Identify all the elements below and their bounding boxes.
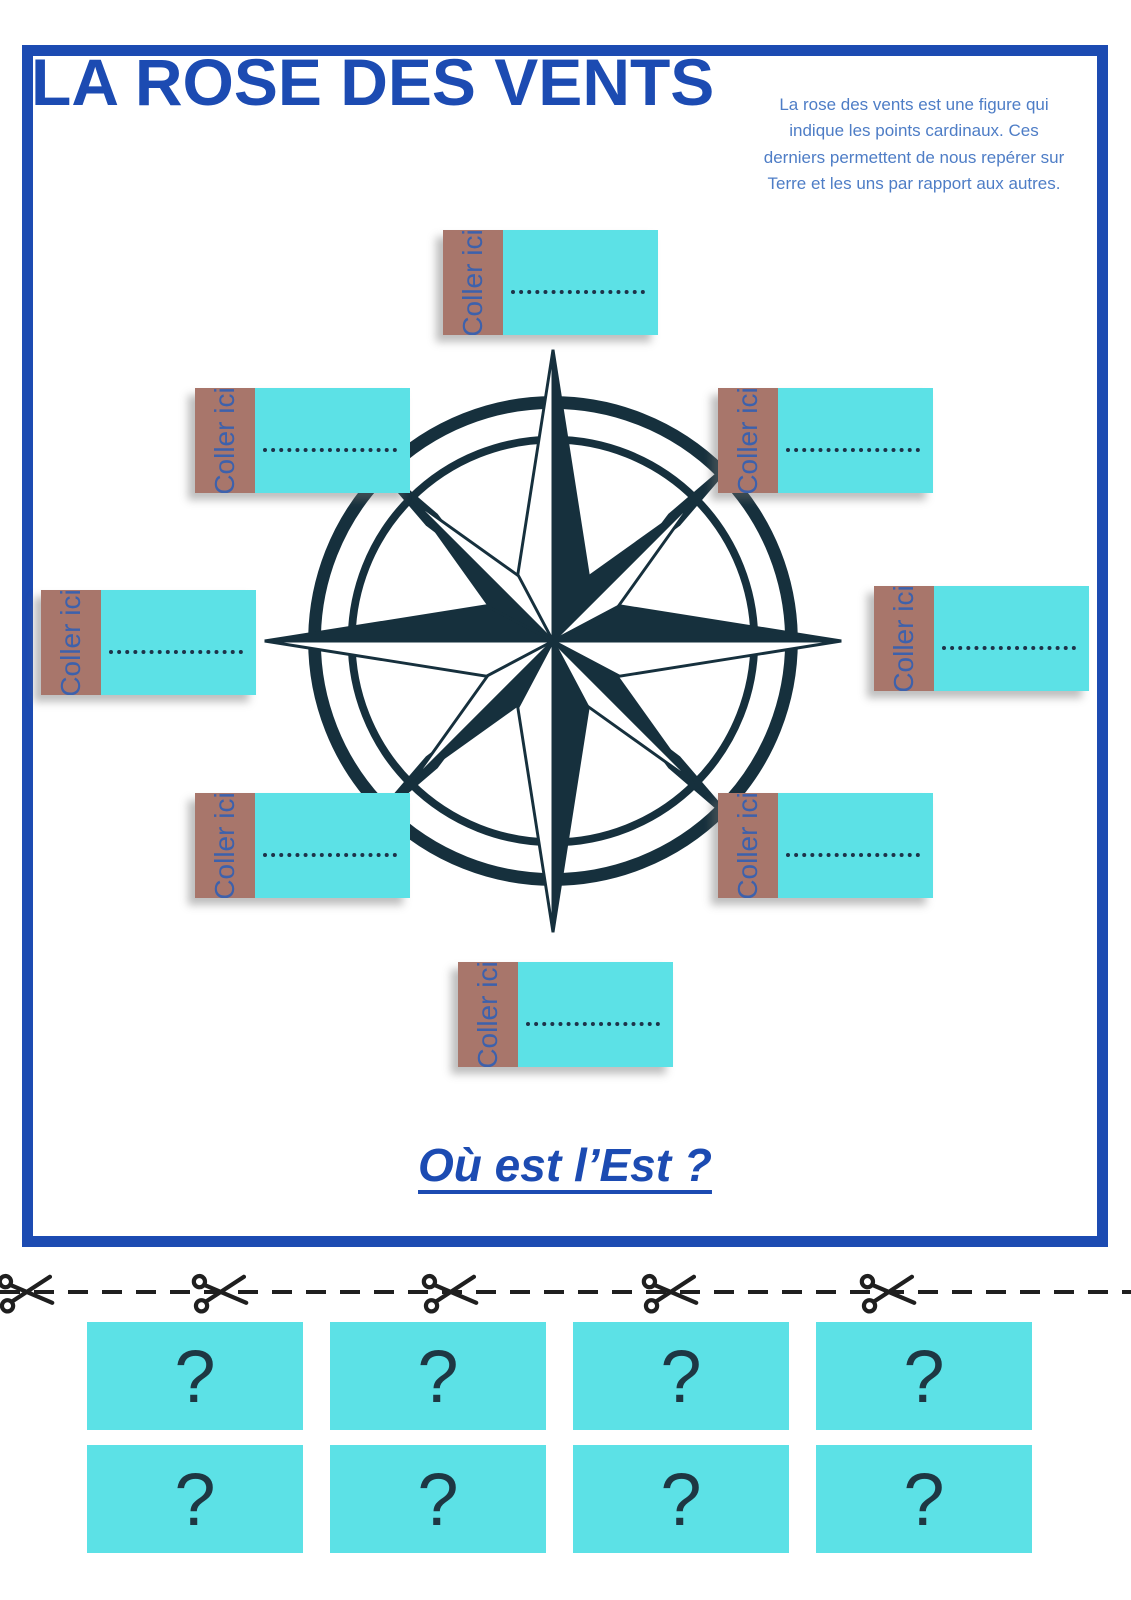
glue-tab: Coller ici [195, 388, 255, 493]
glue-tab-label: Coller ici [457, 230, 489, 335]
dotted-answer-line [263, 448, 397, 452]
glue-tab-label: Coller ici [732, 793, 764, 898]
page-title: LA ROSE DES VENTS [31, 48, 771, 117]
paste-card-north-east[interactable]: Coller ici [718, 388, 933, 493]
glue-tab: Coller ici [458, 962, 518, 1067]
dotted-answer-line [263, 853, 397, 857]
glue-tab-label: Coller ici [55, 590, 87, 695]
answer-card[interactable]: ? [87, 1322, 303, 1430]
scissors-icon [858, 1268, 918, 1317]
dotted-answer-line [786, 448, 920, 452]
answer-card[interactable]: ? [816, 1445, 1032, 1553]
dotted-answer-line [942, 646, 1076, 650]
glue-tab: Coller ici [443, 230, 503, 335]
glue-tab: Coller ici [718, 793, 778, 898]
paste-card-north[interactable]: Coller ici [443, 230, 658, 335]
glue-tab: Coller ici [718, 388, 778, 493]
answer-card[interactable]: ? [330, 1322, 546, 1430]
answer-card[interactable]: ? [816, 1322, 1032, 1430]
paste-card-south-east[interactable]: Coller ici [718, 793, 933, 898]
scissors-icon [190, 1268, 250, 1317]
glue-tab: Coller ici [874, 586, 934, 691]
dotted-answer-line [511, 290, 645, 294]
question-mark: ? [903, 1334, 944, 1419]
paste-card-south[interactable]: Coller ici [458, 962, 673, 1067]
scissors-icon [420, 1268, 480, 1317]
paste-card-east[interactable]: Coller ici [874, 586, 1089, 691]
answer-card[interactable]: ? [573, 1322, 789, 1430]
dotted-answer-line [526, 1022, 660, 1026]
question-mark: ? [417, 1334, 458, 1419]
paste-card-west[interactable]: Coller ici [41, 590, 256, 695]
dotted-answer-line [109, 650, 243, 654]
glue-tab: Coller ici [41, 590, 101, 695]
glue-tab-label: Coller ici [209, 793, 241, 898]
question-title: Où est l’Est ? [22, 1138, 1108, 1192]
intro-text: La rose des vents est une figure qui ind… [760, 92, 1068, 197]
dotted-answer-line [786, 853, 920, 857]
question-mark: ? [417, 1457, 458, 1542]
answer-card[interactable]: ? [87, 1445, 303, 1553]
paste-card-south-west[interactable]: Coller ici [195, 793, 410, 898]
worksheet-page: LA ROSE DES VENTS La rose des vents est … [0, 0, 1131, 1600]
question-mark: ? [174, 1334, 215, 1419]
scissors-icon [640, 1268, 700, 1317]
question-mark: ? [174, 1457, 215, 1542]
question-mark: ? [660, 1334, 701, 1419]
glue-tab: Coller ici [195, 793, 255, 898]
scissors-icon [0, 1268, 56, 1317]
paste-card-north-west[interactable]: Coller ici [195, 388, 410, 493]
glue-tab-label: Coller ici [888, 586, 920, 691]
question-mark: ? [660, 1457, 701, 1542]
answer-card[interactable]: ? [573, 1445, 789, 1553]
glue-tab-label: Coller ici [732, 388, 764, 493]
answer-card[interactable]: ? [330, 1445, 546, 1553]
cut-dashed-line [0, 1290, 1131, 1294]
question-mark: ? [903, 1457, 944, 1542]
glue-tab-label: Coller ici [472, 962, 504, 1067]
glue-tab-label: Coller ici [209, 388, 241, 493]
